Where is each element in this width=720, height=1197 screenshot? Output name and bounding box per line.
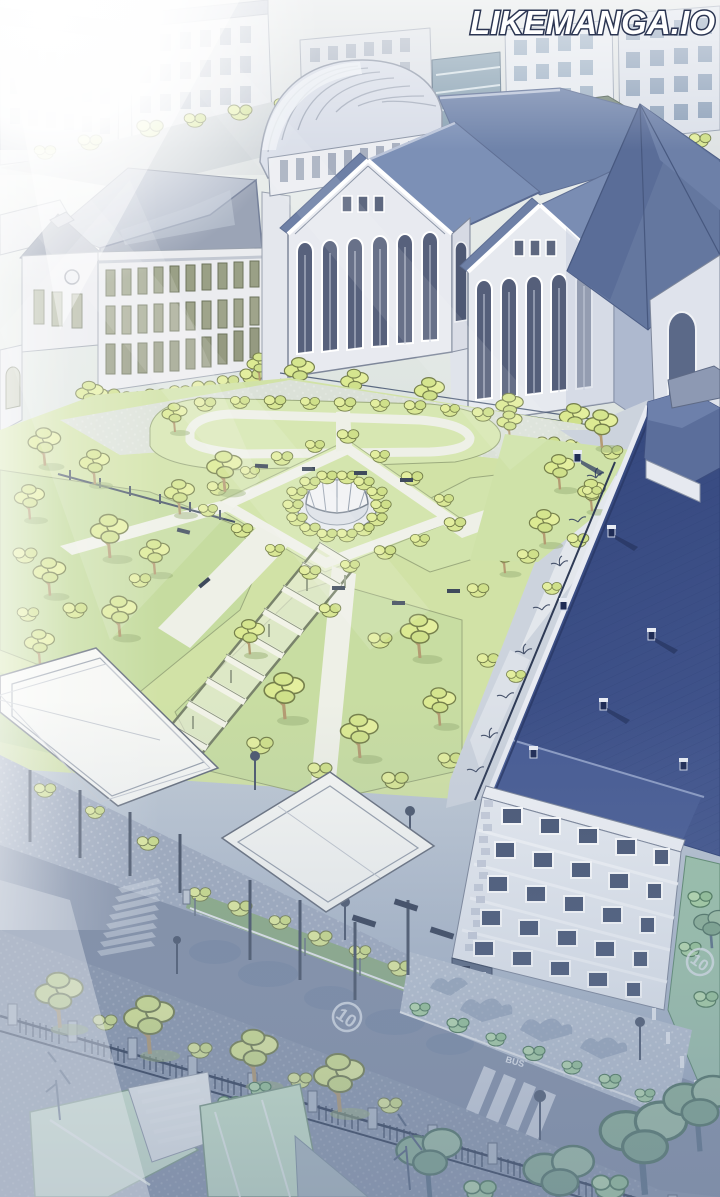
svg-text:LIKEMANGA.IO: LIKEMANGA.IO [470, 4, 716, 41]
